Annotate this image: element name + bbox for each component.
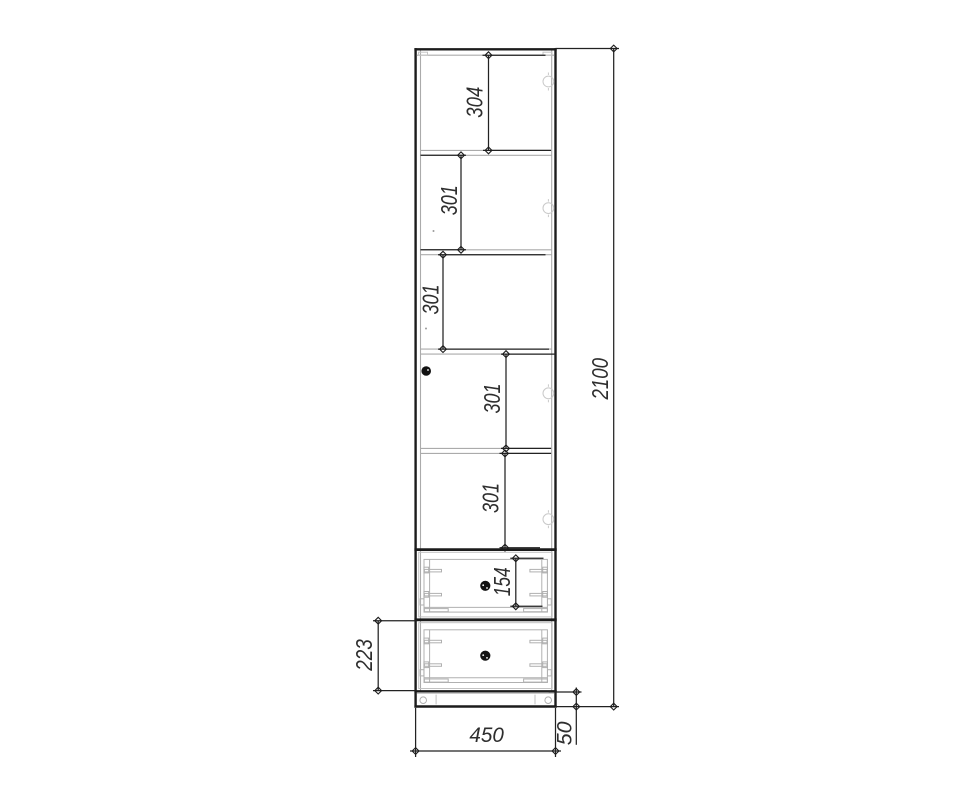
svg-text:304: 304 — [462, 87, 488, 118]
svg-text:301: 301 — [436, 185, 462, 215]
svg-text:154: 154 — [489, 567, 515, 596]
svg-text:223: 223 — [351, 639, 377, 671]
svg-text:301: 301 — [479, 384, 505, 414]
svg-text:301: 301 — [418, 285, 444, 315]
svg-text:50: 50 — [554, 721, 577, 745]
svg-text:2100: 2100 — [587, 358, 613, 400]
svg-text:450: 450 — [469, 724, 504, 747]
svg-text:301: 301 — [477, 483, 503, 513]
